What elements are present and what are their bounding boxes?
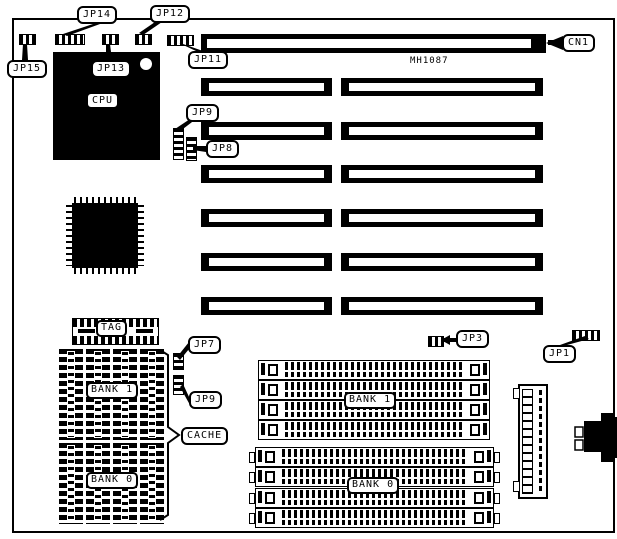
cache-bank1-label: BANK 1 [86,382,138,399]
cn1-arrow [546,36,563,50]
tag-label: TAG [96,320,127,337]
callout-jp1: JP1 [543,345,576,363]
callout-jp12: JP12 [150,5,190,23]
callout-jp13: JP13 [91,60,131,78]
callout-jp8: JP8 [206,140,239,158]
jp1-pointer [560,336,589,345]
cache-bank0-label: BANK 0 [86,472,138,489]
cache-brace [160,350,179,520]
dram-bank0-label: BANK 0 [347,477,399,494]
callout-jp9-upper: JP9 [186,104,219,122]
jp8-pointer [193,146,206,152]
jp12-pointer [139,22,162,35]
callout-jp11: JP11 [188,51,228,69]
model-number-text: MH1087 [410,56,449,66]
keyboard-din-connector [584,413,617,462]
callout-jp14: JP14 [77,6,117,24]
callout-cache: CACHE [181,427,228,445]
jp11-pointer [179,43,203,51]
callout-jp15: JP15 [7,60,47,78]
jp3-arrow [441,335,450,345]
callout-jp7: JP7 [188,336,221,354]
callout-jp9-lower: JP9 [189,391,222,409]
callout-cn1: CN1 [562,34,595,52]
din-pin-tab-bottom [575,440,583,450]
jp14-pointer [63,24,100,36]
din-pin-tab-top [575,427,583,437]
dram-bank1-label: BANK 1 [344,392,396,409]
motherboard-diagram: MH1087 CPU TAG [0,0,617,539]
jp15-pointer [22,44,28,60]
callout-pointer-lines [0,0,617,539]
jp13-pointer [106,44,112,60]
callout-jp3: JP3 [456,330,489,348]
